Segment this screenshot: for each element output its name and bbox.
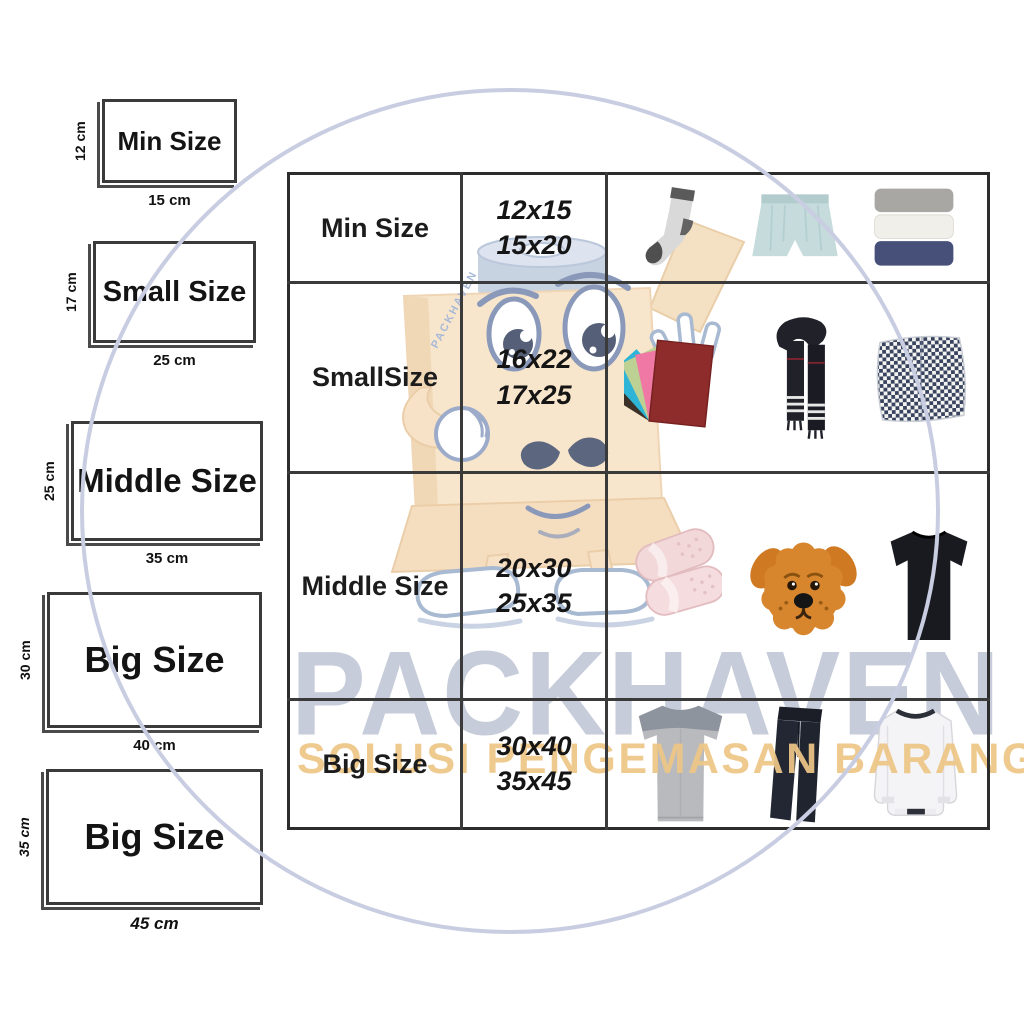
- table-grid: [0, 0, 1024, 1024]
- column-divider: [605, 172, 608, 830]
- row-divider: [287, 281, 990, 284]
- row-divider: [287, 471, 990, 474]
- row-divider: [287, 698, 990, 701]
- column-divider: [460, 172, 463, 830]
- table-border: [287, 172, 990, 830]
- size-chart-infographic: PACKHAVEN: [0, 0, 1024, 1024]
